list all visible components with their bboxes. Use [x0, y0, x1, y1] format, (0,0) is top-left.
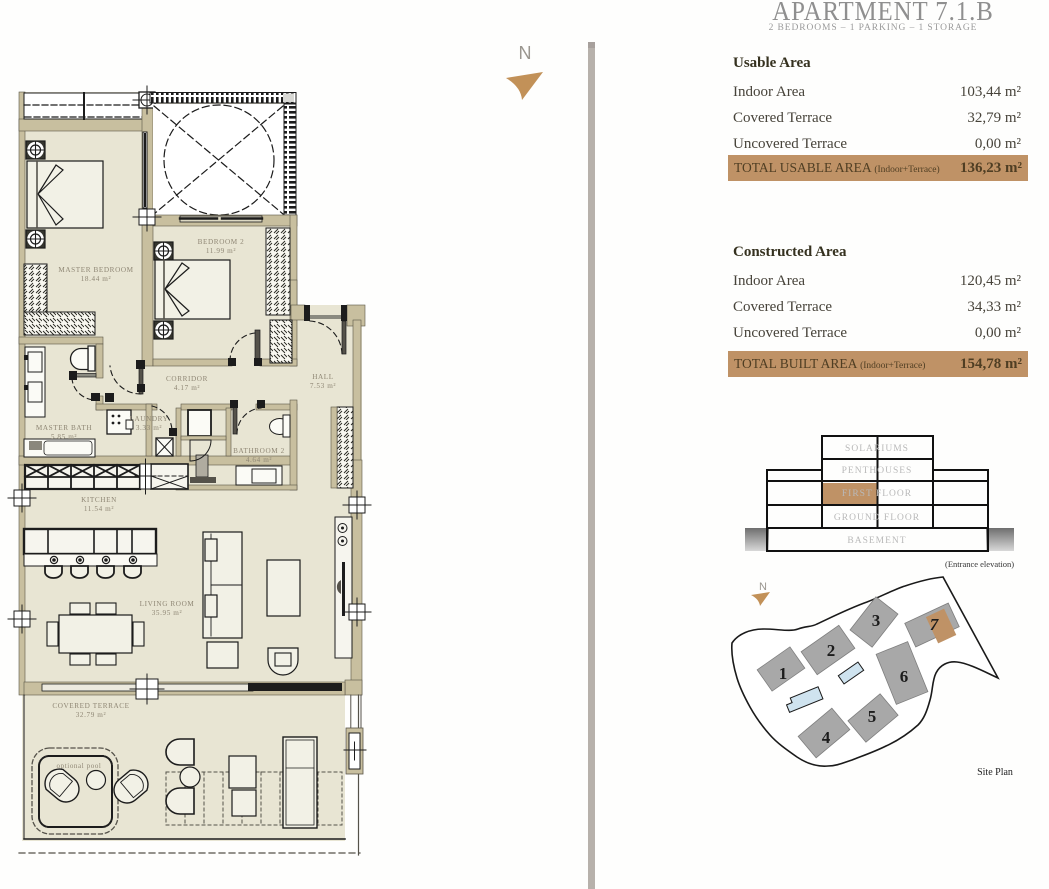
- svg-text:11.54 m²: 11.54 m²: [84, 505, 114, 513]
- svg-text:18.44 m²: 18.44 m²: [81, 275, 112, 283]
- svg-text:FIRST FLOOR: FIRST FLOOR: [842, 489, 912, 499]
- svg-text:35.95 m²: 35.95 m²: [152, 609, 183, 617]
- svg-text:4: 4: [822, 728, 831, 747]
- svg-text:32.79 m²: 32.79 m²: [76, 711, 107, 719]
- svg-text:Site Plan: Site Plan: [977, 767, 1013, 778]
- svg-text:optional pool: optional pool: [57, 762, 102, 770]
- svg-text:MASTER BEDROOM: MASTER BEDROOM: [58, 266, 133, 274]
- svg-text:7.53 m²: 7.53 m²: [310, 382, 336, 390]
- svg-text:KITCHEN: KITCHEN: [81, 496, 117, 504]
- svg-text:4.17 m²: 4.17 m²: [174, 384, 200, 392]
- svg-text:6: 6: [900, 667, 909, 686]
- svg-text:4.64 m²: 4.64 m²: [246, 456, 272, 464]
- svg-text:BASEMENT: BASEMENT: [847, 536, 906, 546]
- svg-text:CORRIDOR: CORRIDOR: [166, 375, 208, 383]
- svg-text:2: 2: [827, 641, 836, 660]
- svg-text:COVERED TERRACE: COVERED TERRACE: [52, 702, 129, 710]
- svg-text:BATHROOM 2: BATHROOM 2: [233, 447, 285, 455]
- svg-text:SOLARIUMS: SOLARIUMS: [845, 444, 909, 454]
- svg-text:N: N: [759, 581, 767, 593]
- svg-text:5: 5: [868, 707, 877, 726]
- svg-text:LIVING ROOM: LIVING ROOM: [140, 600, 195, 608]
- svg-text:N: N: [519, 43, 532, 63]
- svg-text:11.99 m²: 11.99 m²: [206, 247, 236, 255]
- svg-text:HALL: HALL: [312, 373, 334, 381]
- svg-text:PENTHOUSES: PENTHOUSES: [842, 466, 913, 476]
- svg-text:LAUNDRY: LAUNDRY: [130, 415, 169, 423]
- svg-text:BEDROOM 2: BEDROOM 2: [198, 238, 245, 246]
- svg-text:1: 1: [779, 664, 788, 683]
- svg-text:MASTER BATH: MASTER BATH: [36, 424, 92, 432]
- svg-text:3.33 m²: 3.33 m²: [136, 424, 162, 432]
- svg-text:5.85 m²: 5.85 m²: [51, 433, 77, 441]
- svg-text:GROUND FLOOR: GROUND FLOOR: [834, 513, 920, 523]
- svg-text:3: 3: [872, 611, 881, 630]
